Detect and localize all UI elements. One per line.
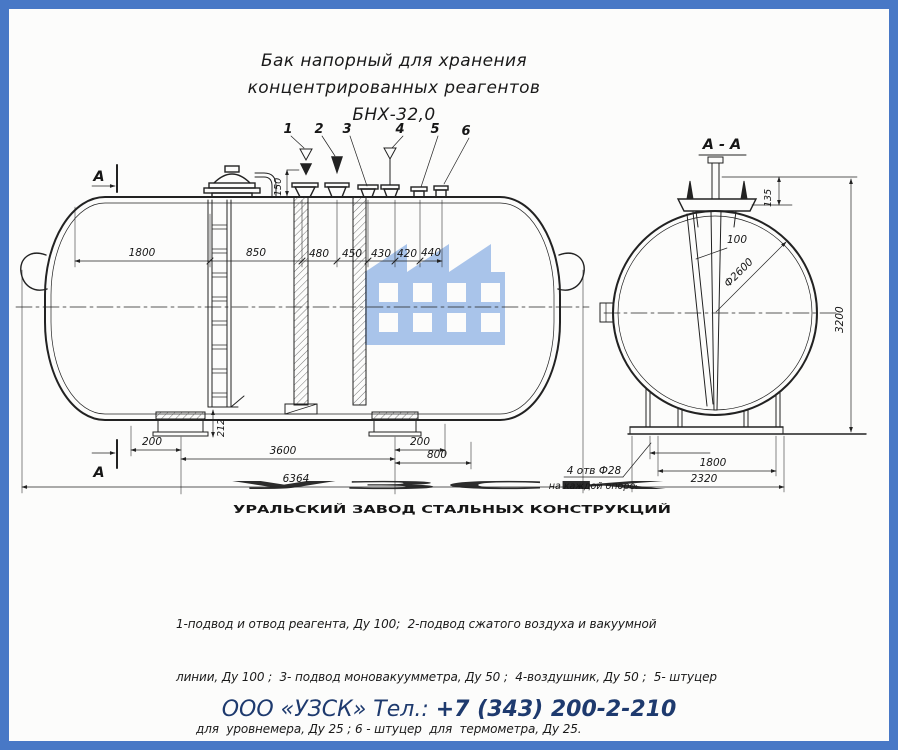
section-view: А - А [549, 137, 866, 492]
svg-text:212: 212 [216, 419, 227, 437]
lifting-lug-right [558, 253, 584, 290]
nozzle-leaders [291, 136, 469, 187]
manhole-section [678, 157, 756, 227]
svg-text:6364: 6364 [283, 473, 310, 485]
svg-text:на каждой опоре: на каждой опоре [549, 481, 636, 492]
legend-line3: для уровнемера, Ду 25 ; 6 - штуцер для т… [176, 721, 716, 739]
internal-ladder [208, 200, 244, 407]
svg-text:Ф2600: Ф2600 [722, 256, 756, 290]
drawing-page: Бак напорный для хранения концентрирован… [0, 0, 898, 750]
footer-company: ООО «УЗСК» Тел.: [222, 697, 429, 722]
bolt-holes-note: 4 отв Ф28 на каждой опоре [549, 436, 710, 492]
svg-text:3600: 3600 [270, 445, 297, 457]
svg-text:200: 200 [410, 436, 430, 448]
svg-text:200: 200 [142, 436, 162, 448]
dim-100: 100 [696, 234, 747, 259]
svg-text:А: А [92, 465, 104, 481]
dip-tubes [285, 197, 366, 414]
drawing-title-line1: Бак напорный для хранения [222, 48, 566, 75]
legend-line1: 1-подвод и отвод реагента, Ду 100; 2-под… [176, 616, 716, 634]
drawing-title: Бак напорный для хранения концентрирован… [222, 48, 566, 129]
manhole [204, 166, 276, 197]
drawing-title-line2: концентрированных реагентов БНХ-32,0 [222, 75, 566, 129]
svg-text:440: 440 [421, 247, 441, 259]
lifting-lug-left [21, 253, 47, 290]
dim-3200: 3200 [834, 179, 851, 432]
svg-text:800: 800 [427, 449, 447, 461]
support-frame-section [628, 389, 866, 434]
svg-text:135: 135 [763, 189, 774, 207]
dim-row: 1800 850 480 450 430 420 440 [75, 200, 442, 267]
internal-pipes-section [687, 211, 721, 410]
section-cut-markers: А А [92, 165, 117, 481]
svg-text:1800: 1800 [129, 247, 156, 259]
svg-text:150: 150 [273, 178, 284, 196]
svg-text:4 отв Ф28: 4 отв Ф28 [567, 465, 622, 477]
nozzles [292, 148, 448, 197]
svg-text:3200: 3200 [834, 306, 846, 333]
svg-text:А: А [92, 169, 104, 185]
section-title: А - А [702, 137, 742, 153]
nozzle-legend: 1-подвод и отвод реагента, Ду 100; 2-под… [176, 581, 716, 750]
watermark-full-name: УРАЛЬСКИЙ ЗАВОД СТАЛЬНЫХ КОНСТРУКЦИЙ [233, 503, 671, 516]
svg-text:430: 430 [371, 248, 391, 260]
footer: ООО «УЗСК» Тел.:+7 (343) 200-2-210 [0, 697, 898, 722]
svg-text:850: 850 [246, 247, 266, 259]
svg-text:420: 420 [397, 248, 417, 260]
legend-line2: линии, Ду 100 ; 3- подвод моновакуумметр… [176, 669, 716, 687]
svg-text:480: 480 [309, 248, 329, 260]
svg-text:1800: 1800 [700, 457, 727, 469]
saddle-supports [153, 412, 421, 436]
svg-text:100: 100 [727, 234, 747, 246]
footer-phone: +7 (343) 200-2-210 [436, 697, 677, 722]
svg-text:450: 450 [342, 248, 362, 260]
dim-diameter: Ф2600 [716, 242, 786, 312]
svg-text:2320: 2320 [691, 473, 718, 485]
